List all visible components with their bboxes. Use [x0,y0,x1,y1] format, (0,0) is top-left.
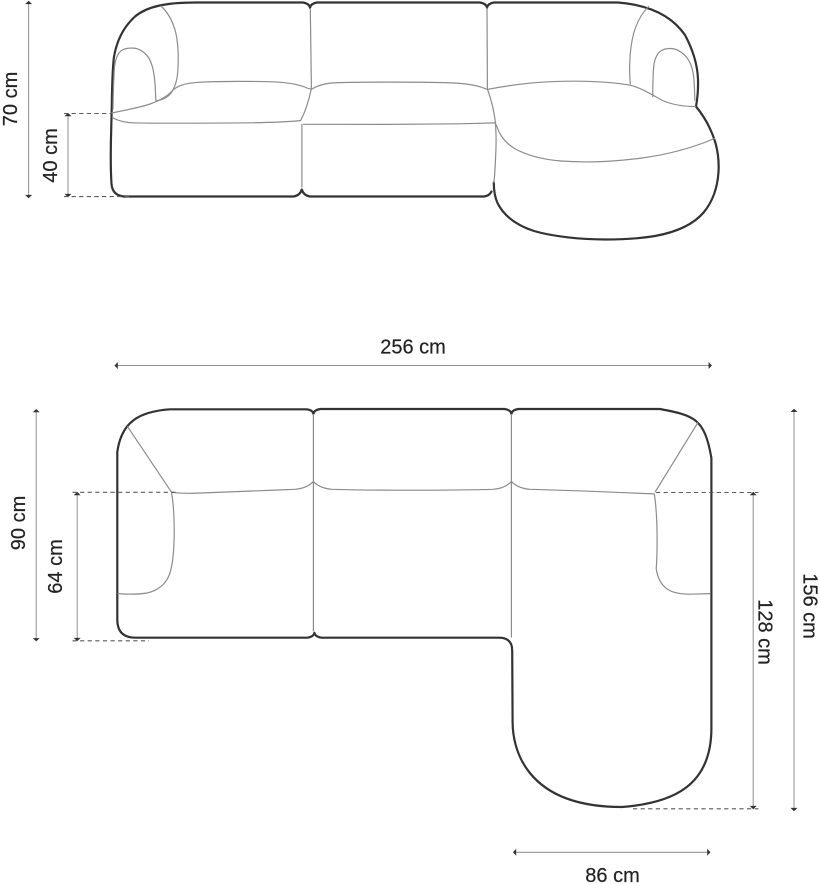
svg-text:128 cm: 128 cm [753,599,775,665]
svg-text:256 cm: 256 cm [380,337,446,359]
svg-text:90 cm: 90 cm [8,496,30,550]
svg-text:40 cm: 40 cm [40,128,62,182]
svg-text:70 cm: 70 cm [0,72,22,126]
svg-text:86 cm: 86 cm [585,865,639,884]
svg-text:64 cm: 64 cm [45,539,67,593]
svg-text:156 cm: 156 cm [798,573,819,639]
